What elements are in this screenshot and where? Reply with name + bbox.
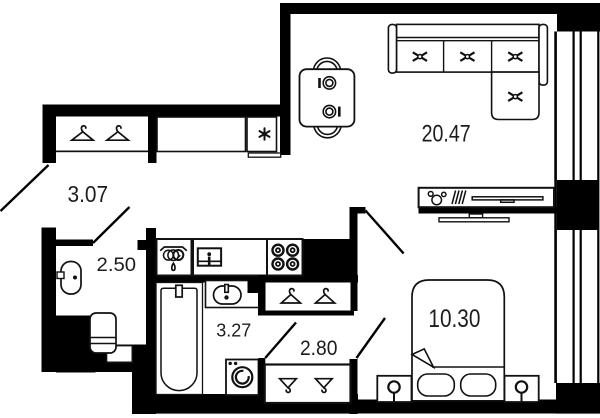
svg-text:3.07: 3.07 (68, 181, 109, 207)
svg-text:2.80: 2.80 (300, 336, 338, 360)
svg-text:10.30: 10.30 (428, 306, 480, 333)
svg-text:3.27: 3.27 (216, 320, 251, 341)
svg-text:20.47: 20.47 (422, 122, 471, 148)
svg-text:2.50: 2.50 (97, 254, 137, 276)
